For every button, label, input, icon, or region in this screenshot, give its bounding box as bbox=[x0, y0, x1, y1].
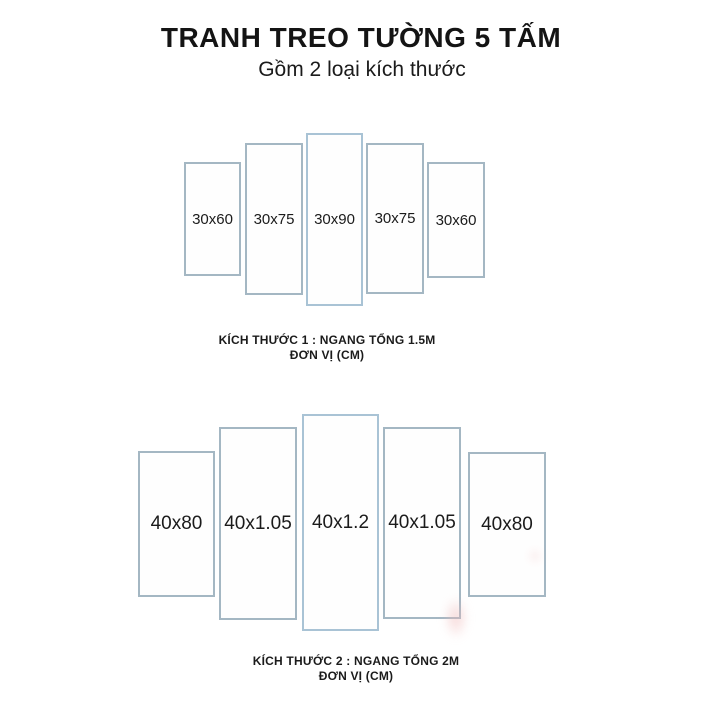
panel-size-label: 40x80 bbox=[151, 513, 203, 535]
panel-size-label: 40x1.05 bbox=[224, 513, 292, 535]
size2-panel-4: 40x1.05 bbox=[383, 427, 461, 619]
size1-caption: KÍCH THƯỚC 1 : NGANG TỔNG 1.5M ĐƠN VỊ (C… bbox=[219, 333, 436, 363]
panel-size-label: 30x75 bbox=[254, 211, 295, 228]
panel-size-label: 30x75 bbox=[375, 210, 416, 227]
size2-panel-1: 40x80 bbox=[138, 451, 215, 597]
size1-panel-4: 30x75 bbox=[366, 143, 424, 294]
size2-panel-5: 40x80 bbox=[468, 452, 546, 597]
size2-caption: KÍCH THƯỚC 2 : NGANG TỔNG 2M ĐƠN VỊ (CM) bbox=[253, 654, 459, 684]
size1-panel-2: 30x75 bbox=[245, 143, 303, 295]
page-subtitle: Gồm 2 loại kích thước bbox=[258, 58, 466, 82]
size1-panel-5: 30x60 bbox=[427, 162, 485, 278]
size2-panel-3: 40x1.2 bbox=[302, 414, 379, 631]
size1-panel-1: 30x60 bbox=[184, 162, 241, 276]
size1-panel-3: 30x90 bbox=[306, 133, 363, 306]
poster-canvas: TRANH TREO TƯỜNG 5 TẤM Gồm 2 loại kích t… bbox=[0, 0, 720, 720]
size2-panel-2: 40x1.05 bbox=[219, 427, 297, 620]
panel-size-label: 40x1.2 bbox=[312, 512, 369, 534]
size2-caption-line1: KÍCH THƯỚC 2 : NGANG TỔNG 2M bbox=[253, 654, 459, 669]
panel-size-label: 30x60 bbox=[192, 211, 233, 228]
panel-size-label: 30x60 bbox=[436, 212, 477, 229]
size1-caption-line1: KÍCH THƯỚC 1 : NGANG TỔNG 1.5M bbox=[219, 333, 436, 348]
page-title: TRANH TREO TƯỜNG 5 TẤM bbox=[161, 22, 561, 54]
panel-size-label: 40x80 bbox=[481, 514, 533, 536]
panel-size-label: 30x90 bbox=[314, 211, 355, 228]
size1-caption-line2: ĐƠN VỊ (CM) bbox=[219, 348, 436, 363]
panel-size-label: 40x1.05 bbox=[388, 512, 456, 534]
size2-caption-line2: ĐƠN VỊ (CM) bbox=[253, 669, 459, 684]
